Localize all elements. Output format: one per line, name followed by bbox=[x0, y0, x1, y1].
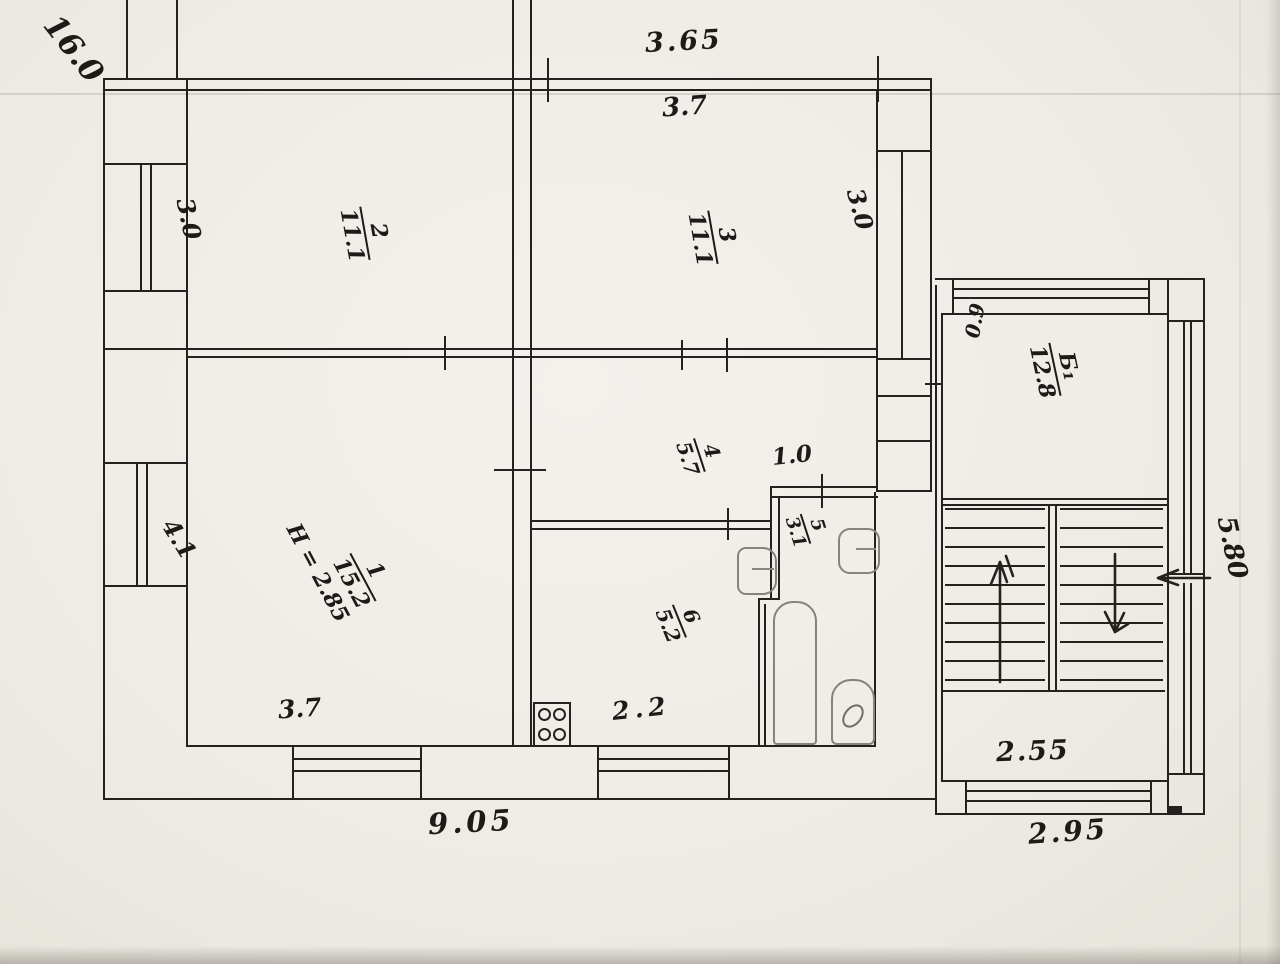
scan-shadow-bottom bbox=[0, 946, 1280, 964]
dim-right-upper: 3.0 bbox=[843, 186, 877, 233]
floor-plan-scan: 16.0 3.65 3.7 3.0 3.0 4.1 0.9 5.80 1.0 H… bbox=[0, 0, 1280, 964]
wall-line bbox=[530, 528, 772, 530]
wall-line bbox=[941, 498, 1167, 500]
wall-line bbox=[941, 780, 1167, 782]
wall-line bbox=[1190, 583, 1192, 773]
wall-line bbox=[103, 78, 930, 80]
toilet-icon bbox=[831, 679, 875, 745]
room5-number: 5 bbox=[806, 516, 828, 534]
wall-line bbox=[444, 336, 446, 370]
wall-line bbox=[103, 89, 930, 91]
wall-line bbox=[727, 508, 729, 540]
wall-line bbox=[925, 383, 943, 385]
paper-fold bbox=[1239, 0, 1241, 964]
wall-line bbox=[126, 0, 128, 80]
wall-line bbox=[1167, 320, 1205, 322]
wall-line bbox=[681, 340, 683, 370]
plan-detail bbox=[1105, 554, 1128, 632]
plan-detail bbox=[553, 728, 566, 741]
wall-line bbox=[935, 278, 1205, 280]
wall-line bbox=[1048, 504, 1050, 692]
room6-area: 5.2 bbox=[652, 606, 685, 646]
room-label-b1: Б₁ 12.8 bbox=[1025, 338, 1085, 401]
wall-line bbox=[770, 486, 878, 488]
dim-bottom-main: 9.05 bbox=[427, 806, 515, 839]
room6-number: 6 bbox=[679, 606, 704, 627]
wall-line bbox=[292, 745, 294, 800]
wall-line bbox=[876, 395, 932, 397]
bath-sink-icon bbox=[838, 528, 880, 574]
wall-line bbox=[146, 462, 148, 587]
wall-line bbox=[186, 745, 876, 747]
wall-line bbox=[965, 780, 967, 815]
wall-line bbox=[136, 462, 138, 587]
stove-icon bbox=[533, 702, 571, 747]
wall-line bbox=[930, 78, 932, 492]
wall-line bbox=[292, 770, 422, 772]
wall-line bbox=[530, 520, 772, 522]
wall-line bbox=[176, 0, 178, 80]
dim-plot-length: 16.0 bbox=[38, 10, 109, 89]
wall-line bbox=[876, 440, 932, 442]
wall-line bbox=[1183, 583, 1185, 773]
wall-line bbox=[935, 285, 937, 813]
entrance-arrow-icon bbox=[1146, 566, 1212, 590]
wall-line bbox=[952, 288, 1150, 290]
wall-line bbox=[103, 163, 188, 165]
wall-line bbox=[965, 800, 1152, 802]
kitchen-sink-icon bbox=[737, 547, 777, 595]
wall-line bbox=[758, 598, 760, 745]
wall-line bbox=[420, 745, 422, 800]
dim-stair-inner-width: 2.55 bbox=[996, 737, 1071, 767]
scan-shadow-right bbox=[1266, 0, 1280, 964]
wall-line bbox=[103, 78, 105, 800]
wall-line bbox=[821, 474, 823, 508]
dim-left-lower: 4.1 bbox=[158, 515, 200, 563]
wall-line bbox=[597, 758, 730, 760]
wall-line bbox=[876, 490, 932, 492]
wall-line bbox=[1203, 278, 1205, 815]
room-label-4: 4 5.7 bbox=[672, 431, 727, 478]
wall-line bbox=[1168, 806, 1182, 815]
plan-detail bbox=[838, 700, 868, 732]
wall-line bbox=[494, 469, 546, 471]
wall-line bbox=[726, 338, 728, 372]
bathtub-icon bbox=[773, 601, 817, 745]
room3-number: 3 bbox=[713, 225, 738, 244]
dim-stair-outer-width: 2.95 bbox=[1027, 815, 1109, 849]
room2-number: 2 bbox=[365, 221, 390, 240]
stairs-down-arrow-icon bbox=[1100, 550, 1130, 646]
wall-line bbox=[952, 297, 1150, 299]
wall-line bbox=[758, 598, 780, 600]
plan-detail bbox=[1158, 570, 1210, 585]
kitchen-sink-tap bbox=[752, 568, 774, 570]
wall-line bbox=[778, 496, 780, 600]
wall-line bbox=[530, 78, 532, 745]
wall-line bbox=[150, 163, 152, 292]
wall-line bbox=[1190, 320, 1192, 573]
wall-line bbox=[186, 348, 876, 350]
room-label-6: 6 5.2 bbox=[652, 596, 708, 645]
wall-line bbox=[103, 290, 188, 292]
wall-line bbox=[597, 770, 730, 772]
wall-line bbox=[1150, 780, 1152, 815]
wall-line bbox=[547, 58, 549, 102]
wall-line bbox=[965, 790, 1152, 792]
wall-line bbox=[140, 163, 142, 292]
wall-line bbox=[876, 150, 932, 152]
wall-line bbox=[186, 356, 876, 358]
dim-kitchen-width: 2.2 bbox=[611, 693, 672, 724]
room-label-5: 5 3.1 bbox=[781, 508, 830, 551]
wall-line bbox=[941, 504, 1167, 506]
paper-crease bbox=[0, 93, 1280, 95]
wall-line bbox=[103, 348, 188, 350]
dim-room1-width: 3.7 bbox=[277, 695, 322, 723]
wall-line bbox=[292, 758, 422, 760]
roomb1-area: 12.8 bbox=[1025, 343, 1059, 400]
wall-line bbox=[770, 496, 878, 498]
wall-line bbox=[512, 78, 514, 745]
plan-detail bbox=[538, 728, 551, 741]
bath-sink-tap bbox=[856, 548, 876, 550]
room-label-2: 2 11.1 bbox=[335, 202, 394, 263]
roomb1-number: Б₁ bbox=[1054, 350, 1083, 383]
wall-line bbox=[941, 690, 1165, 692]
room5-area: 3.1 bbox=[781, 515, 809, 551]
wall-line bbox=[1167, 773, 1205, 775]
dim-left-upper: 3.0 bbox=[173, 196, 205, 242]
wall-line bbox=[1055, 504, 1057, 692]
wall-line bbox=[876, 358, 932, 360]
dim-right-height: 5.80 bbox=[1213, 514, 1252, 581]
wall-line bbox=[1167, 278, 1169, 815]
stairs-up-arrow-icon bbox=[985, 548, 1015, 688]
wall-line bbox=[530, 0, 532, 80]
wall-line bbox=[512, 0, 514, 80]
window-right-glazing bbox=[901, 150, 903, 358]
wall-line bbox=[103, 798, 935, 800]
wall-line bbox=[186, 78, 188, 747]
wall-line bbox=[1183, 320, 1185, 573]
room-label-3: 3 11.1 bbox=[683, 206, 742, 267]
room4-number: 4 bbox=[699, 441, 723, 461]
plan-detail bbox=[991, 556, 1013, 682]
wall-line bbox=[728, 745, 730, 800]
room4-area: 5.7 bbox=[672, 439, 703, 479]
wall-line bbox=[597, 745, 599, 800]
plan-detail bbox=[553, 708, 566, 721]
dim-top-outer: 3.65 bbox=[644, 26, 723, 57]
wall-line bbox=[764, 604, 766, 745]
dim-bath-entry: 1.0 bbox=[771, 442, 813, 469]
dim-stair-wall: 0.9 bbox=[962, 302, 988, 340]
plan-detail bbox=[538, 708, 551, 721]
dim-top-inner: 3.7 bbox=[661, 92, 708, 121]
